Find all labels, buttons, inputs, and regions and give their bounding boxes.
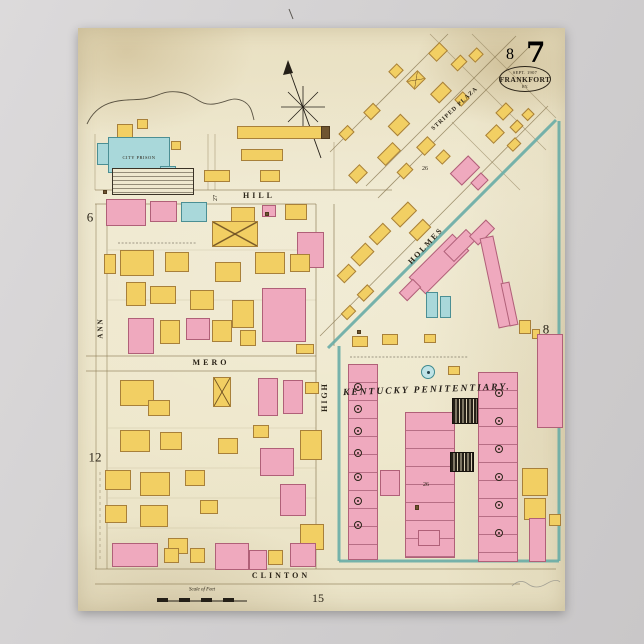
building	[428, 42, 448, 62]
building	[112, 168, 194, 195]
building	[418, 530, 440, 546]
building	[290, 254, 310, 272]
building	[450, 452, 474, 472]
block-number-26-pen: 26	[423, 482, 429, 488]
building	[268, 550, 283, 565]
building	[148, 400, 170, 416]
building	[495, 102, 513, 120]
stamp-city: FRANKFORT	[500, 75, 551, 84]
building	[388, 114, 411, 137]
machine-symbol-circle	[354, 427, 362, 435]
building	[509, 119, 523, 133]
building	[321, 126, 330, 139]
building	[237, 126, 329, 139]
building	[337, 264, 357, 284]
building	[391, 201, 417, 227]
building	[380, 470, 400, 496]
building	[128, 318, 154, 354]
building	[190, 290, 214, 310]
building	[357, 330, 361, 334]
building	[120, 250, 154, 276]
frankfort-date-stamp-oval: SEPT. 1907 FRANKFORT KY.	[499, 66, 551, 92]
building	[283, 380, 303, 414]
building	[104, 254, 116, 274]
building	[218, 438, 238, 454]
building-label-city-prison: CITY PRISON	[123, 156, 156, 161]
building	[382, 334, 398, 345]
building	[406, 70, 426, 90]
building	[212, 320, 232, 342]
building	[424, 334, 436, 343]
stamp-state: KY.	[522, 84, 528, 89]
building	[470, 172, 488, 190]
street-label-high: HIGH	[321, 382, 329, 412]
building	[348, 164, 368, 184]
machine-symbol-circle	[354, 383, 362, 391]
building	[232, 300, 254, 328]
building	[260, 448, 294, 476]
building	[253, 425, 269, 438]
building	[97, 143, 109, 165]
machine-symbol-circle	[495, 529, 503, 537]
building	[338, 125, 354, 141]
building	[150, 286, 176, 304]
adjacent-sheet-number: 8	[506, 46, 514, 64]
building	[265, 212, 269, 216]
building	[305, 382, 319, 394]
building	[397, 163, 414, 180]
building	[140, 472, 170, 496]
building	[190, 548, 205, 563]
building	[485, 124, 505, 144]
building	[440, 296, 451, 318]
building	[260, 170, 280, 182]
building	[181, 202, 207, 222]
ref-sheet-left-6: 6	[87, 211, 94, 224]
building	[240, 330, 256, 346]
building	[186, 318, 210, 340]
building	[524, 498, 546, 520]
machine-symbol-circle	[495, 473, 503, 481]
building	[103, 190, 107, 194]
machine-symbol-circle	[495, 501, 503, 509]
building	[369, 223, 392, 246]
building	[241, 149, 283, 161]
building	[435, 149, 451, 165]
machine-symbol-circle	[354, 449, 362, 457]
building	[529, 518, 546, 562]
scale-label: Scale of Feet	[189, 588, 215, 593]
machine-symbol-circle	[495, 417, 503, 425]
building	[150, 201, 177, 222]
machine-symbol-circle	[495, 445, 503, 453]
building	[521, 108, 534, 121]
building	[160, 432, 182, 450]
building	[519, 320, 531, 334]
building	[204, 170, 230, 182]
building	[165, 252, 189, 272]
machine-symbol-circle	[354, 405, 362, 413]
machine-symbol-circle	[354, 521, 362, 529]
building	[430, 82, 452, 104]
sheet-number: 7	[526, 36, 545, 69]
ref-sheet-right-8: 8	[543, 323, 550, 336]
building	[415, 505, 419, 510]
street-label-ann: ANN	[98, 317, 105, 338]
building	[280, 484, 306, 516]
building	[171, 141, 181, 150]
building	[126, 282, 146, 306]
block-number-26-top: 26	[422, 166, 428, 172]
building	[105, 505, 127, 523]
building	[549, 514, 561, 526]
building	[105, 470, 131, 490]
building	[416, 136, 436, 156]
building	[120, 430, 150, 452]
building	[377, 142, 401, 166]
building	[212, 221, 258, 247]
water-tank-symbol	[421, 365, 435, 379]
street-label-mero: MERO	[193, 359, 230, 367]
building	[352, 336, 368, 347]
ref-sheet-bottom-15: 15	[312, 592, 324, 604]
building	[290, 543, 316, 567]
building	[300, 430, 322, 460]
building	[468, 47, 484, 63]
building	[296, 344, 314, 354]
block-number-27: 27	[213, 195, 219, 201]
building	[507, 137, 522, 152]
building	[140, 505, 168, 527]
building	[452, 398, 478, 424]
ref-sheet-left-12: 12	[89, 451, 102, 464]
machine-symbol-circle	[354, 497, 362, 505]
building	[357, 284, 375, 302]
building	[160, 320, 180, 344]
street-label-hill: HILL	[243, 192, 275, 200]
building	[522, 468, 548, 496]
building	[106, 199, 146, 226]
building	[215, 543, 249, 570]
building	[262, 288, 306, 342]
building	[137, 119, 148, 129]
map-items: 8 7 SEPT. 1907 FRANKFORT KY. 612815HILLM…	[0, 0, 644, 644]
building	[200, 500, 218, 514]
machine-symbol-circle	[495, 389, 503, 397]
building	[388, 63, 404, 79]
building	[249, 550, 267, 570]
building	[112, 543, 158, 567]
building	[258, 378, 278, 416]
building	[448, 366, 460, 375]
building	[164, 548, 179, 563]
building	[426, 292, 438, 318]
building	[341, 305, 357, 321]
machine-symbol-circle	[354, 473, 362, 481]
photo-backdrop: 8 7 SEPT. 1907 FRANKFORT KY. 612815HILLM…	[0, 0, 644, 644]
building	[213, 377, 231, 407]
building	[285, 204, 307, 220]
building	[350, 242, 374, 266]
building	[215, 262, 241, 282]
building	[185, 470, 205, 486]
building	[451, 55, 468, 72]
building	[255, 252, 285, 274]
building	[537, 334, 563, 428]
building	[363, 103, 381, 121]
street-label-clinton: CLINTON	[252, 572, 310, 580]
